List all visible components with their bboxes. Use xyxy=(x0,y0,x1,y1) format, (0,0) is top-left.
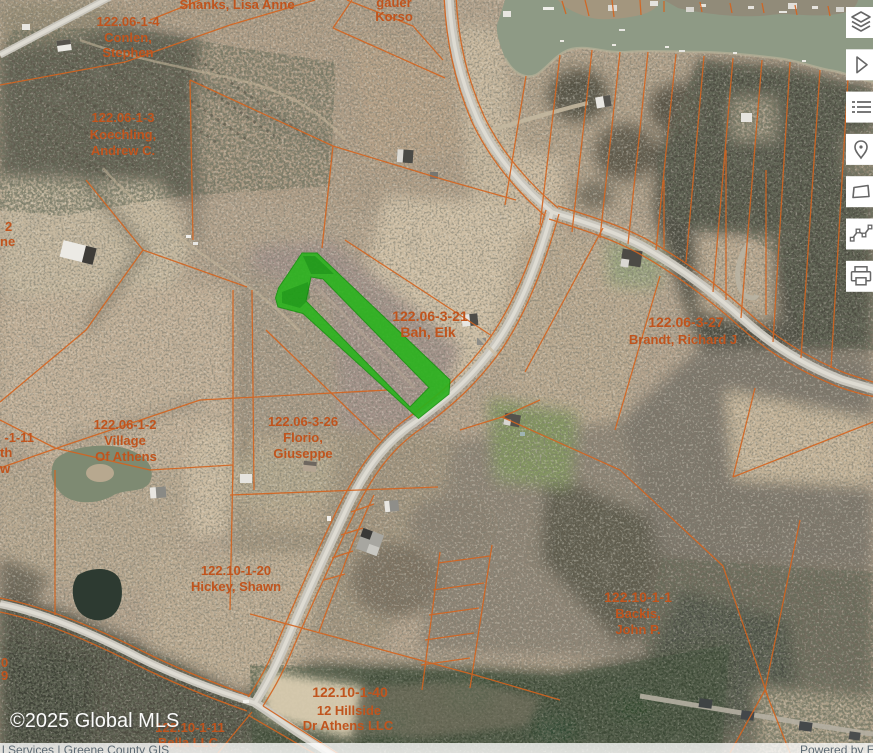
svg-text:Of Athens: Of Athens xyxy=(95,449,157,464)
svg-text:Koechling,: Koechling, xyxy=(90,127,156,142)
svg-text:122.06-3-26: 122.06-3-26 xyxy=(268,414,338,429)
svg-text:Brandt, Richard J: Brandt, Richard J xyxy=(629,332,737,347)
svg-text:2: 2 xyxy=(5,219,12,234)
svg-text:©2025 Global MLS: ©2025 Global MLS xyxy=(10,710,179,732)
svg-text:Hickey, Shawn: Hickey, Shawn xyxy=(191,579,281,594)
svg-text:122.06-1-2: 122.06-1-2 xyxy=(94,417,157,432)
svg-text:l Services | Greene County GIS: l Services | Greene County GIS xyxy=(2,743,169,753)
svg-text:Village: Village xyxy=(104,433,146,448)
svg-text:w: w xyxy=(0,461,11,476)
svg-text:Korso: Korso xyxy=(375,9,413,24)
svg-text:Powered by Esri: Powered by Esri xyxy=(800,743,873,753)
svg-text:Florio,: Florio, xyxy=(283,430,323,445)
svg-text:122.10-1-1: 122.10-1-1 xyxy=(604,589,672,605)
svg-text:Dr Athens LLC: Dr Athens LLC xyxy=(303,718,394,733)
svg-text:122.06-3-21: 122.06-3-21 xyxy=(392,308,468,324)
svg-text:Stephen: Stephen xyxy=(102,45,153,60)
svg-text:Shanks, Lisa Anne: Shanks, Lisa Anne xyxy=(179,0,294,12)
svg-text:122.06-3-27: 122.06-3-27 xyxy=(648,314,724,330)
svg-text:Conlen,: Conlen, xyxy=(104,30,152,45)
svg-text:th: th xyxy=(0,445,12,460)
svg-text:Andrew C.: Andrew C. xyxy=(91,143,155,158)
svg-text:Backis,: Backis, xyxy=(615,606,661,621)
svg-text:Bah, Elk: Bah, Elk xyxy=(400,324,455,340)
svg-text:ne: ne xyxy=(0,234,15,249)
svg-text:Giuseppe: Giuseppe xyxy=(273,446,332,461)
svg-text:122.06-1-4: 122.06-1-4 xyxy=(97,14,161,29)
svg-text:122.06-1-3: 122.06-1-3 xyxy=(92,110,155,125)
svg-text:John P.: John P. xyxy=(615,622,660,637)
svg-text:12 Hillside: 12 Hillside xyxy=(317,703,381,718)
svg-text:122.10-1-20: 122.10-1-20 xyxy=(201,563,271,578)
svg-text:9: 9 xyxy=(1,668,8,683)
svg-text:122.10-1-40: 122.10-1-40 xyxy=(312,684,388,700)
svg-text:-1-11: -1-11 xyxy=(4,430,34,445)
